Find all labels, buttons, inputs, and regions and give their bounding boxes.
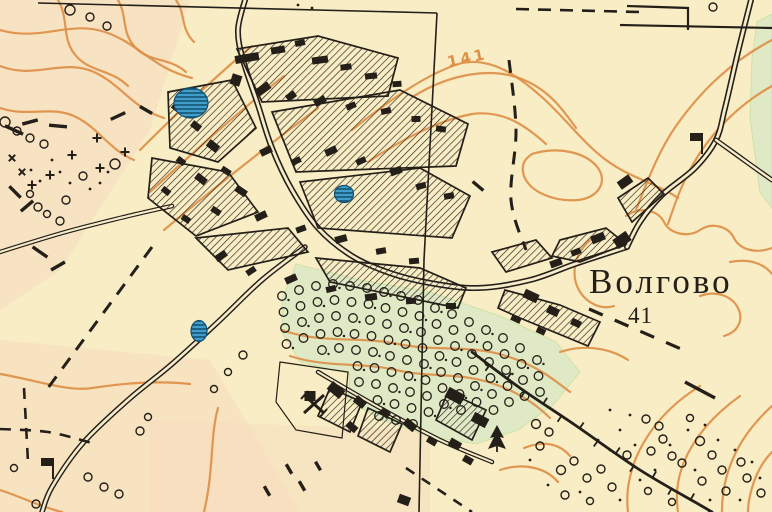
building xyxy=(392,81,401,88)
track-tick xyxy=(691,494,695,500)
dot xyxy=(629,414,632,417)
bush xyxy=(225,369,232,376)
dot xyxy=(579,491,582,494)
map-canvas[interactable] xyxy=(0,0,772,512)
orchard-dot xyxy=(445,359,447,361)
orchard-dot xyxy=(480,389,482,391)
boundary-dashed-line xyxy=(509,60,526,250)
bush xyxy=(737,458,745,466)
paper-tint xyxy=(0,0,190,310)
dot xyxy=(547,484,550,487)
track-tick xyxy=(653,471,657,477)
dot xyxy=(39,180,42,183)
bush xyxy=(696,437,705,446)
village-name-label: Волгово xyxy=(589,262,733,302)
dot xyxy=(734,449,737,452)
orchard-dot xyxy=(527,367,529,369)
dot xyxy=(619,499,622,502)
bush xyxy=(561,491,569,499)
dot xyxy=(597,439,600,442)
bush xyxy=(557,466,566,475)
orchard-dot xyxy=(343,335,345,337)
bush xyxy=(687,415,694,422)
orchard-dot xyxy=(496,381,498,383)
bush xyxy=(532,420,541,429)
orchard-dot xyxy=(292,347,294,349)
building xyxy=(446,303,456,309)
village-block xyxy=(552,228,626,262)
dot xyxy=(59,171,62,174)
bush xyxy=(583,474,591,482)
building xyxy=(617,174,634,189)
dot xyxy=(639,479,642,482)
contour-line xyxy=(500,466,558,482)
dot xyxy=(107,171,110,174)
signpost-flag xyxy=(690,133,702,141)
bush xyxy=(570,457,578,465)
dot xyxy=(297,4,300,7)
dot xyxy=(687,429,690,432)
dot xyxy=(30,169,33,172)
orchard-dot xyxy=(374,307,376,309)
orchard-dot xyxy=(491,333,493,335)
building xyxy=(245,266,257,277)
dot xyxy=(619,429,622,432)
dot xyxy=(669,444,672,447)
bush xyxy=(645,488,652,495)
map-viewport[interactable]: Волгово 41 141 xyxy=(0,0,772,512)
bush xyxy=(642,415,650,423)
building xyxy=(365,72,378,79)
dot xyxy=(634,444,637,447)
contour-line xyxy=(560,348,628,360)
orchard-dot xyxy=(323,305,325,307)
village-block xyxy=(196,228,308,270)
survey-line xyxy=(620,25,772,28)
orchard-dot xyxy=(389,295,391,297)
track-tick xyxy=(616,448,620,454)
bush xyxy=(708,451,716,459)
orchard-dot xyxy=(338,287,340,289)
building xyxy=(411,116,420,122)
orchard-dot xyxy=(434,415,436,417)
dot xyxy=(609,409,612,412)
contour-line xyxy=(626,210,772,250)
dot xyxy=(739,499,742,502)
village-block xyxy=(300,168,470,238)
scrub-tick xyxy=(685,382,715,398)
pond-stripes xyxy=(174,88,208,118)
dot xyxy=(69,182,72,185)
boundary-dashed-line xyxy=(516,9,640,12)
track-tick xyxy=(594,441,598,447)
bush xyxy=(709,3,717,11)
orchard-dot xyxy=(440,311,442,313)
building xyxy=(409,258,419,265)
orchard-dot xyxy=(418,427,420,429)
orchard-dot xyxy=(287,299,289,301)
dot xyxy=(694,469,697,472)
bush xyxy=(698,477,706,485)
bush xyxy=(597,465,605,473)
dot xyxy=(609,449,612,452)
signpost-flag xyxy=(41,458,53,466)
bush xyxy=(669,499,676,506)
bush xyxy=(587,498,594,505)
orchard-dot xyxy=(465,397,467,399)
orchard-dot xyxy=(425,319,427,321)
orchard-dot xyxy=(363,369,365,371)
dot xyxy=(751,461,754,464)
contour-line xyxy=(730,261,772,274)
dot xyxy=(759,477,762,480)
track-tick xyxy=(580,422,584,428)
orchard-dot xyxy=(460,349,462,351)
orchard-dot xyxy=(449,407,451,409)
spot-height-label: 41 xyxy=(628,303,653,329)
pond-stripes xyxy=(191,321,207,342)
track-tick xyxy=(558,416,562,422)
bush xyxy=(647,447,655,455)
orchard-dot xyxy=(542,363,544,365)
dot xyxy=(529,459,532,462)
bush xyxy=(659,435,667,443)
building xyxy=(334,234,347,244)
orchard-dot xyxy=(378,355,380,357)
orchard-dot xyxy=(409,331,411,333)
bush xyxy=(743,474,751,482)
dot xyxy=(89,188,92,191)
bush xyxy=(623,451,631,459)
orchard-dot xyxy=(394,343,396,345)
orchard-dot xyxy=(476,341,478,343)
dot xyxy=(99,182,102,185)
orchard-dot xyxy=(414,379,416,381)
pond-stripes xyxy=(335,186,354,203)
orchard-dot xyxy=(511,373,513,375)
contour-line xyxy=(523,150,602,200)
orchard-dot xyxy=(358,321,360,323)
scrub-tick xyxy=(473,182,484,191)
bush xyxy=(239,351,247,359)
orchard-dot xyxy=(327,353,329,355)
contour-line xyxy=(524,444,570,456)
orchard-dot xyxy=(398,391,400,393)
village-block xyxy=(148,158,258,236)
bush xyxy=(718,466,726,474)
dot xyxy=(51,159,54,162)
dot xyxy=(311,7,314,10)
dot xyxy=(704,424,707,427)
orchard-dot xyxy=(383,403,385,405)
building xyxy=(295,224,306,233)
orchard-dot xyxy=(429,367,431,369)
bush xyxy=(608,483,616,491)
village-block xyxy=(492,240,552,272)
dot xyxy=(717,439,720,442)
bush xyxy=(668,452,676,460)
building xyxy=(376,247,387,255)
bush xyxy=(545,428,553,436)
dot xyxy=(654,469,657,472)
bush xyxy=(757,489,765,497)
orchard-dot xyxy=(307,325,309,327)
dot xyxy=(709,499,712,502)
scrub-tick xyxy=(49,125,67,127)
